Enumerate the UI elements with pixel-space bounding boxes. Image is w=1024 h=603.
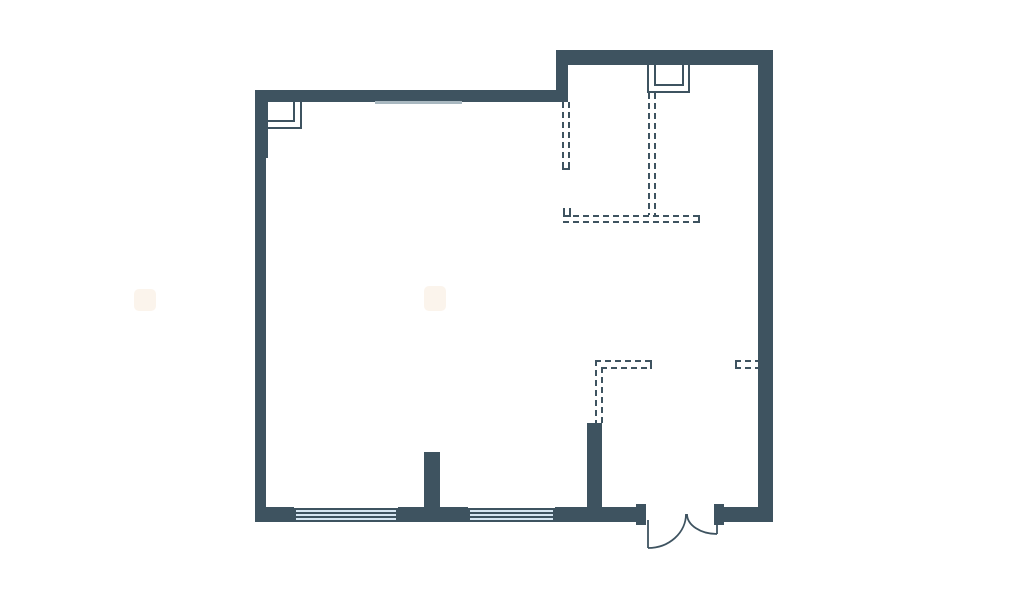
- dashed-partition: [563, 215, 700, 217]
- wall-left-upper: [255, 90, 268, 158]
- duct-shaft-line: [682, 65, 684, 86]
- duct-shaft-line: [268, 127, 302, 129]
- interior-wall-stub: [424, 452, 440, 508]
- dashed-partition: [568, 102, 570, 170]
- dashed-partition: [601, 367, 603, 423]
- interior-wall-stub: [587, 423, 602, 508]
- wall-opening-marker: [375, 101, 462, 104]
- duct-shaft-line: [654, 84, 684, 86]
- duct-shaft-line: [300, 102, 302, 129]
- dashed-partition-cap: [562, 168, 570, 170]
- wall-bottom-segment: [724, 507, 773, 522]
- dashed-partition: [595, 360, 652, 362]
- dashed-partition: [654, 93, 656, 215]
- window: [294, 508, 398, 522]
- dashed-partition: [562, 102, 564, 170]
- wall-bottom-segment: [398, 507, 468, 522]
- dashed-partition-cap: [563, 208, 565, 217]
- dashed-partition: [601, 367, 652, 369]
- door-arc-left: [648, 514, 686, 548]
- dashed-partition-cap: [735, 360, 737, 369]
- watermark-logo: [134, 289, 156, 311]
- wall-bottom-segment: [255, 507, 294, 522]
- wall-bottom-segment: [555, 507, 636, 522]
- dashed-partition: [595, 360, 597, 423]
- door-arc-right: [687, 514, 717, 534]
- dashed-partition-cap: [698, 215, 700, 223]
- window: [468, 508, 555, 522]
- wall-top-right: [556, 50, 773, 65]
- dashed-partition-cap: [569, 208, 571, 217]
- floor-plan-canvas: [0, 0, 1024, 603]
- duct-shaft-line: [654, 65, 656, 86]
- duct-shaft-line: [647, 65, 649, 93]
- dashed-partition: [735, 367, 758, 369]
- wall-right: [758, 50, 773, 522]
- dashed-partition: [563, 221, 700, 223]
- watermark-logo: [424, 286, 446, 311]
- duct-shaft-line: [688, 65, 690, 93]
- dashed-partition: [735, 360, 758, 362]
- dashed-partition-cap: [650, 360, 652, 369]
- dashed-partition: [648, 93, 650, 215]
- duct-shaft-line: [293, 102, 295, 122]
- double-door-swing: [628, 498, 728, 556]
- wall-left-lower: [255, 158, 266, 522]
- duct-shaft-line: [268, 120, 295, 122]
